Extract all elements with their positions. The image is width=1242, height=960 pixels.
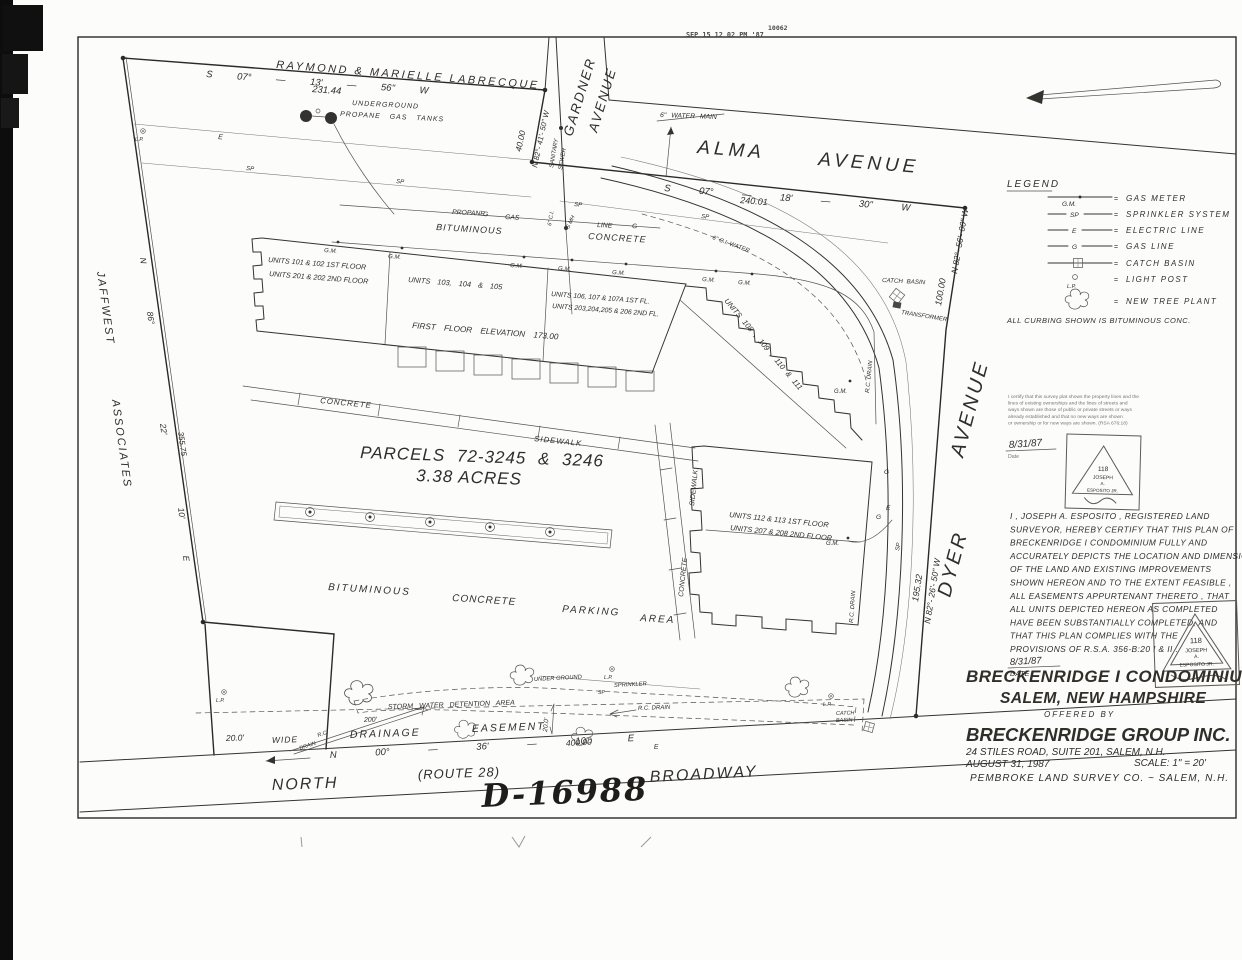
dim-20-label: 20.0' (225, 732, 245, 743)
sprinkler-label: SPRINKLER (614, 681, 648, 689)
curb-curves (601, 157, 913, 719)
plan-date: AUGUST 31, 1987 (965, 759, 1050, 770)
legend-title: LEGEND (1007, 179, 1060, 190)
line-label: LINE (597, 222, 613, 230)
catch-basin-icon (889, 288, 904, 303)
legend: LEGEND G.M. = GAS METER SP = SPRINKLER S… (1006, 179, 1230, 325)
sp-label: SP (598, 690, 606, 696)
sp-label: SP (574, 202, 583, 209)
tree-icon (785, 677, 809, 697)
offered-by: OFFERED BY (1044, 710, 1115, 719)
concrete-top-label: CONCRETE (588, 231, 647, 245)
sewer-label: SEWER (558, 147, 568, 170)
sp-label: SP (701, 214, 710, 221)
certificate-line: ALL UNITS DEPICTED HEREON AS COMPLETED (1009, 604, 1218, 614)
catch-basin-ne-label: CATCH BASIN (882, 277, 926, 286)
concrete-vert-label: CONCRETE (678, 557, 689, 597)
lp-label: L.P. (135, 137, 144, 143)
gm-label: G.M. (738, 280, 751, 287)
legend-light-post-icon (1073, 275, 1078, 280)
certificate-line: BRECKENRIDGE I CONDOMINIUM FULLY AND (1010, 538, 1207, 548)
g-label: G (632, 223, 637, 230)
west-bearing-min: 22' (158, 422, 170, 436)
planting-island (274, 502, 612, 548)
seal-number: 118 (1098, 466, 1109, 473)
legend-note: ALL CURBING SHOWN IS BITUMINOUS CONC. (1006, 316, 1191, 325)
gm-label: G.M. (612, 270, 625, 277)
parking-label: PARKING (562, 604, 621, 619)
gm-label: G.M. (826, 541, 839, 547)
stamp-line: or ownership or for new ways are shown. … (1008, 420, 1128, 426)
street-north: NORTH (272, 775, 339, 794)
legend-eq: = (1114, 277, 1118, 284)
street-alma-1: ALMA (696, 137, 766, 163)
storm-water-label: STORM WATER DETENTION AREA (388, 700, 515, 711)
building-wing (680, 286, 862, 448)
west-owner-2: ASSOCIATES (109, 398, 133, 489)
dyer-upper-distance: 100.00 (933, 277, 948, 306)
propane-label: PROPANE (452, 209, 486, 218)
parcels-label: PARCELS 72-3245 & 3246 (360, 443, 604, 470)
sp-label: SP (246, 166, 255, 173)
stamp-line: ways shown are those of public or privat… (1008, 407, 1133, 413)
dyer-upper-bearing: N 82°- 56'- 00" W (949, 207, 970, 274)
plan-svg: SEP 15 12 02 PM '87 10062 (0, 0, 1242, 960)
acres-label: 3.38 ACRES (416, 466, 522, 489)
drain-label: DRAIN (299, 741, 317, 752)
west-bearing-deg: 86° (145, 311, 157, 326)
certificate-line: HAVE BEEN SUBSTANTIALLY COMPLETED, AND (1010, 617, 1217, 627)
e-label: E (886, 505, 891, 512)
legend-label: GAS LINE (1126, 242, 1175, 251)
lp-label: L.P. (604, 675, 613, 681)
certificate-line: SURVEYOR, HEREBY CERTIFY THAT THIS PLAN … (1010, 524, 1234, 534)
surveyor-seal-icon: 118 JOSEPH A. ESPOSITO JR. (1065, 434, 1141, 510)
wide-label: WIDE (272, 734, 299, 745)
title-line-2: SALEM, NEW HAMPSHIRE (1000, 690, 1207, 707)
propane-tanks-label: PROPANE GAS TANKS (340, 111, 444, 123)
rc-drain-center: R.C. DRAIN (638, 705, 671, 712)
legend-symbol: G.M. (1062, 201, 1076, 208)
seal-name: ESPOSITO JR. (1087, 488, 1118, 494)
rc-drain-vert-2: R.C. DRAIN (849, 590, 857, 623)
legend-symbol: G (1072, 244, 1077, 251)
plan-scale: SCALE: 1" = 20' (1134, 758, 1207, 769)
stamp-line: already established and that no new ways… (1008, 414, 1123, 420)
transformer-label: TRANSFORMER (901, 310, 948, 323)
g-label: G (483, 211, 488, 218)
building-right (689, 446, 892, 634)
smh-label: S MH (565, 215, 576, 230)
legend-eq: = (1114, 228, 1118, 235)
tree-icon (345, 681, 373, 705)
legend-label: GAS METER (1126, 194, 1187, 203)
certificate-line: SHOWN HEREON AND TO THE EXTENT FEASIBLE … (1010, 578, 1232, 588)
certificate-line: I , JOSEPH A. ESPOSITO , REGISTERED LAND (1010, 511, 1210, 521)
dyer-lower-distance: 195.32 (910, 574, 924, 603)
underground-label: UNDERGROUND (352, 100, 419, 110)
west-owner-1: JAFFWEST (94, 270, 116, 346)
stamp-number: 10062 (768, 24, 788, 32)
seal-number: 118 (1190, 636, 1202, 645)
catch-basin-icon (863, 721, 874, 732)
e-label: E (218, 134, 224, 141)
gm-label: G.M. (834, 389, 847, 395)
drainage-label: DRAINAGE (350, 727, 421, 741)
sidewalk-walk-label: SIDEWALK (534, 434, 583, 448)
stamp-line: lines of existing ownerships and the lin… (1008, 401, 1128, 407)
g-label: G (884, 469, 889, 476)
certificate-line: OF THE LAND AND EXISTING IMPROVEMENTS (1010, 564, 1211, 574)
received-stamp: SEP 15 12 02 PM '87 (686, 31, 764, 39)
gas-meter-labels: G.M. G.M. G.M. G.M. G.M. G.M. G.M. G.M. … (324, 241, 852, 547)
gm-label: G.M. (702, 277, 715, 284)
under-ground-label: UNDER GROUND (534, 674, 582, 683)
sp-label: SP (396, 179, 405, 186)
gardner-width-label: 40.00 (513, 129, 527, 152)
ci-water-label: 6" C.I. WATER (711, 235, 751, 254)
title-line-1: BRECKENRIDGE I CONDOMINIUM (966, 667, 1242, 686)
g-label: G (876, 514, 881, 521)
gm-label: G.M. (510, 263, 523, 270)
company-address: 24 STILES ROAD, SUITE 201, SALEM, N.H. (965, 747, 1166, 758)
plan-number: D-16988 (480, 770, 649, 815)
legend-label: CATCH BASIN (1126, 259, 1196, 268)
pencil-marks (301, 836, 651, 847)
company-name: BRECKENRIDGE GROUP INC. (966, 724, 1231, 745)
floor-elevation-label: FIRST FLOOR ELEVATION 173.00 (412, 321, 559, 342)
propane-tank-icon (300, 109, 337, 124)
tree-icon (510, 665, 534, 685)
stamp-date: 8/31/87 (1008, 438, 1042, 451)
gm-label: G.M. (558, 266, 571, 273)
utility-tick-labels: SP SP SP SP E E G G G E G SP SP L.P. L.P… (135, 134, 902, 751)
easement-label: EASEMENT (472, 720, 546, 735)
seal-name: A. (1101, 481, 1105, 486)
units-108-label: UNITS 108 , 109 , 110 & 111 (722, 297, 804, 392)
west-bearing-e: E (181, 555, 192, 562)
survey-company: PEMBROKE LAND SURVEY CO. ~ SALEM, N.H. (970, 773, 1229, 784)
legend-symbol: E (1072, 228, 1077, 235)
legend-eq: = (1114, 299, 1118, 306)
survey-sheet: SEP 15 12 02 PM '87 10062 (0, 0, 1242, 960)
stamp-line: I certify that this survey plat shows th… (1008, 394, 1139, 400)
lp-label: L.P. (216, 698, 225, 704)
legend-label: SPRINKLER SYSTEM (1126, 210, 1230, 219)
bituminous-parking-label: BITUMINOUS (328, 582, 411, 598)
legend-eq: = (1114, 196, 1118, 203)
legend-eq: = (1114, 212, 1118, 219)
units-103-label: UNITS 103, 104 & 105 (408, 275, 504, 291)
e-label: E (654, 744, 659, 751)
west-bearing-n: N (138, 257, 149, 265)
stamp-date-label: Date (1008, 454, 1019, 460)
dim-200-label: 200' (363, 717, 378, 725)
street-broadway: BROADWAY (649, 763, 758, 786)
units-203-label: UNITS 203,204,205 & 206 2ND FL. (552, 303, 659, 318)
legend-tree-icon (1065, 289, 1089, 309)
certificate-line: ALL EASEMENTS APPURTENANT THERETO , THAT (1009, 591, 1230, 601)
scan-artifacts (0, 0, 43, 960)
legend-label: ELECTRIC LINE (1126, 226, 1205, 235)
concrete-walk-label: CONCRETE (320, 396, 372, 410)
certificate-line: PROVISIONS OF R.S.A. 356-B:20 I & II . (1010, 644, 1178, 654)
west-distance-label: 355.75 (176, 431, 188, 457)
ci-label: 6" C.I. (547, 210, 556, 226)
catch-label: CATCH (836, 710, 855, 717)
gm-label: G.M. (324, 248, 337, 255)
rc-drain-vert-1: R.C. DRAIN (865, 360, 874, 393)
area-label: AREA (639, 613, 676, 626)
north-arrow-icon (1026, 80, 1221, 104)
title-block: BRECKENRIDGE I CONDOMINIUM SALEM, NEW HA… (965, 667, 1242, 784)
gas-label: GAS (505, 214, 520, 222)
legend-label: NEW TREE PLANT (1126, 297, 1217, 306)
legend-label: LIGHT POST (1126, 275, 1189, 284)
sidewalk-vert-label: SIDEWALK (689, 469, 700, 506)
north-distance-label: 231.44 (311, 84, 342, 97)
certificate-line: THAT THIS PLAN COMPLIES WITH THE (1010, 631, 1178, 641)
basin-label: BASIN (836, 717, 853, 724)
bituminous-top-label: BITUMINOUS (436, 222, 503, 236)
transformer-icon (893, 301, 902, 308)
dim-20-vert-label: 20.0' (542, 717, 551, 733)
legend-eq: = (1114, 261, 1118, 268)
seal-name: A. (1194, 654, 1199, 660)
concrete-parking-label: CONCRETE (452, 593, 517, 608)
units-201-label: UNITS 201 & 202 2ND FLOOR (269, 269, 369, 286)
street-alma-2: AVENUE (817, 149, 920, 178)
legend-catch-basin-icon (1074, 259, 1083, 268)
alma-distance-label: 240.01 (739, 195, 768, 207)
certification-stamp: I certify that this survey plat shows th… (1006, 394, 1139, 460)
certificate-line: ACCURATELY DEPICTS THE LOCATION AND DIME… (1009, 551, 1242, 561)
legend-symbol: SP (1070, 212, 1079, 219)
legend-eq: = (1114, 244, 1118, 251)
gm-label: G.M. (388, 254, 401, 261)
gardner-bearing-label: N 82°- 41'- 50" W (530, 109, 551, 168)
west-bearing-sec: 10' (176, 507, 187, 520)
street-dyer-2: AVENUE (946, 358, 993, 460)
lp-label: L.P. (823, 702, 832, 708)
